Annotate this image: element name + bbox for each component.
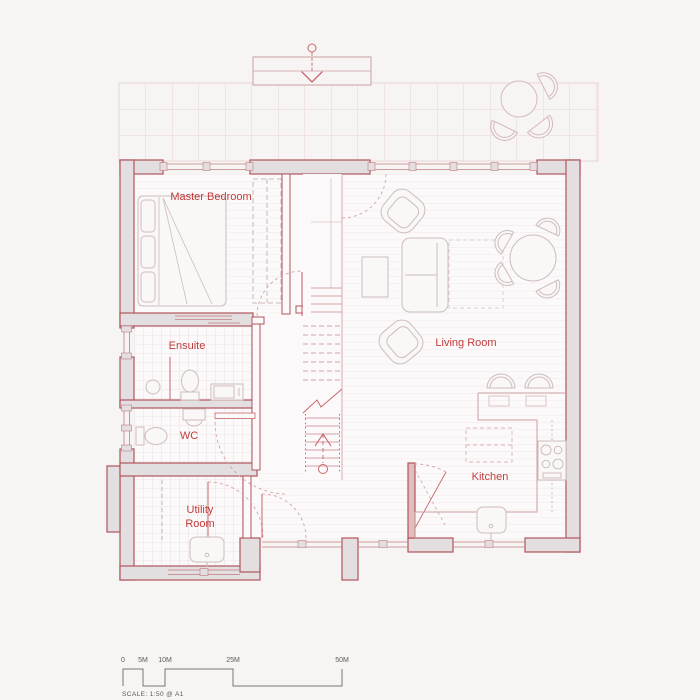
scale-tick-5m: 5M bbox=[138, 657, 148, 664]
utility-sink bbox=[190, 537, 224, 562]
pillow bbox=[141, 200, 155, 232]
scale-tick-0: 0 bbox=[121, 657, 125, 664]
toilet bbox=[145, 428, 167, 445]
pillow bbox=[141, 236, 155, 268]
floor-plan-drawing: Master Bedroom Ensuite WC Utility Room L… bbox=[0, 0, 700, 700]
scale-caption: SCALE: 1:50 @ A1 bbox=[122, 691, 184, 698]
kitchen-wall-stub bbox=[408, 463, 415, 538]
staircase bbox=[303, 174, 342, 480]
utility-hall-wall bbox=[243, 476, 251, 538]
ensuite-hall-wall bbox=[252, 317, 260, 470]
toilet bbox=[182, 370, 199, 392]
toilet-cistern bbox=[181, 392, 199, 400]
utility-room-label-line2: Room bbox=[185, 518, 214, 530]
hall-floor bbox=[260, 470, 342, 538]
dining-table bbox=[510, 235, 556, 281]
cooktop bbox=[538, 441, 566, 480]
utility-window-bay bbox=[107, 466, 120, 532]
basin bbox=[146, 380, 160, 394]
toilet-cistern bbox=[136, 427, 144, 445]
sofa bbox=[402, 238, 448, 312]
scale-tick-10m: 10M bbox=[158, 657, 172, 664]
side-table bbox=[362, 257, 388, 297]
pillow bbox=[141, 272, 155, 302]
utility-room-label-line1: Utility bbox=[187, 504, 214, 516]
master-bedroom-label: Master Bedroom bbox=[170, 191, 251, 203]
bedroom-hall-wall bbox=[282, 174, 290, 314]
living-room-label: Living Room bbox=[435, 337, 496, 349]
hand-basin bbox=[183, 409, 205, 420]
scale-tick-25m: 25M bbox=[226, 657, 240, 664]
kitchen-label: Kitchen bbox=[472, 471, 509, 483]
outdoor-table bbox=[501, 81, 537, 117]
living-floor bbox=[342, 174, 566, 538]
scale-tick-50m: 50M bbox=[335, 657, 349, 664]
wc-utility-wall bbox=[120, 463, 257, 476]
ensuite-wc-wall bbox=[120, 400, 253, 408]
floor-plan-sheet: Master Bedroom Ensuite WC Utility Room L… bbox=[0, 0, 700, 700]
ensuite-label: Ensuite bbox=[169, 340, 206, 352]
wc-label: WC bbox=[180, 430, 198, 442]
